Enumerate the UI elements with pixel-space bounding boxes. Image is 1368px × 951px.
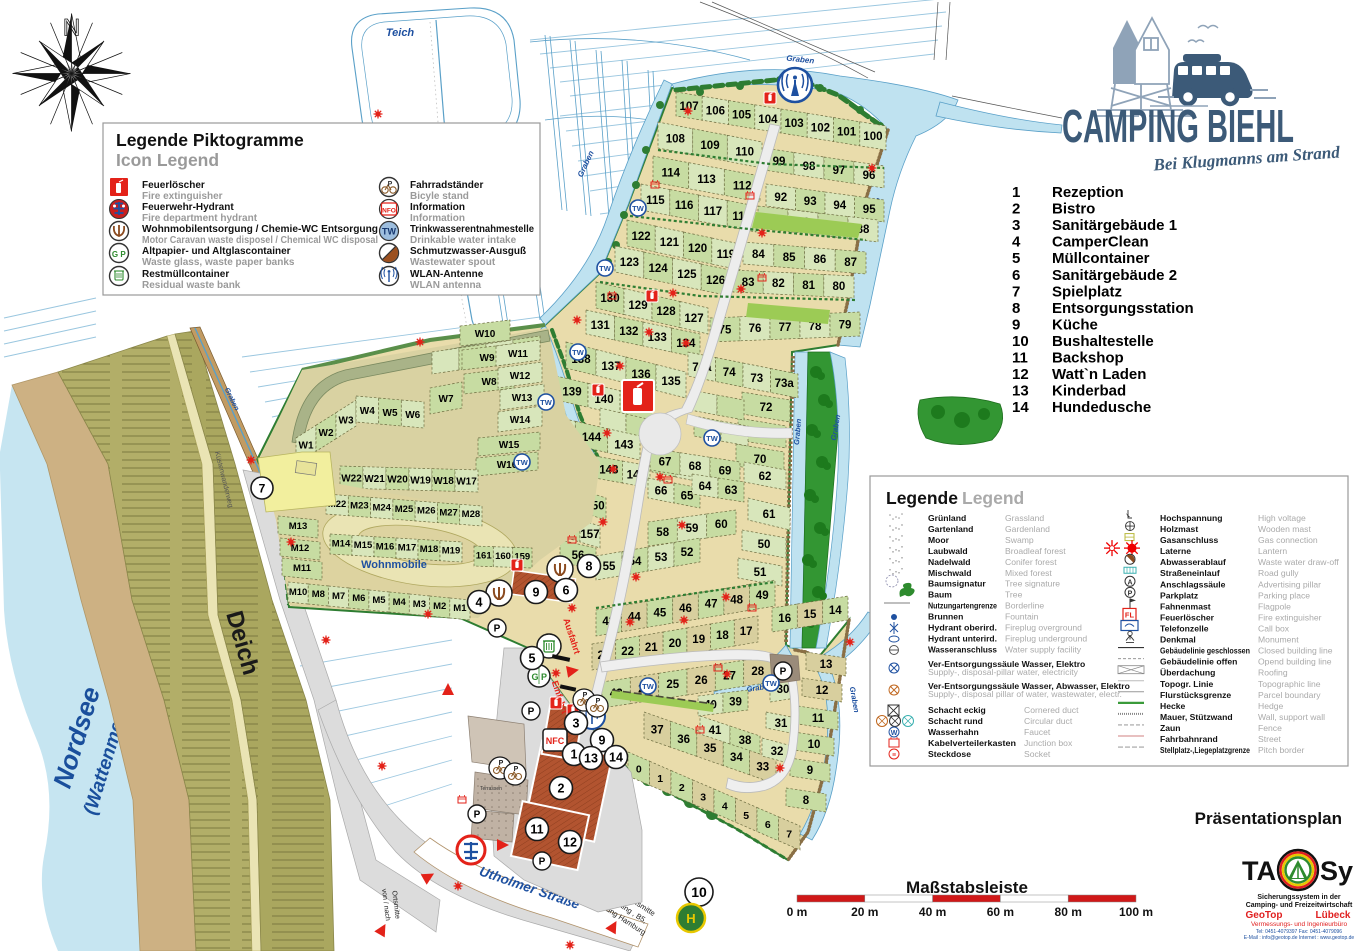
svg-text:Wohnmobile: Wohnmobile bbox=[361, 559, 427, 571]
svg-text:W4: W4 bbox=[360, 406, 375, 417]
svg-text:Drinkable water intake: Drinkable water intake bbox=[410, 235, 517, 246]
svg-text:126: 126 bbox=[706, 275, 725, 287]
svg-text:117: 117 bbox=[704, 206, 723, 218]
svg-text:N: N bbox=[63, 15, 80, 42]
svg-text:Advertising pillar: Advertising pillar bbox=[1258, 579, 1321, 589]
svg-text:15: 15 bbox=[804, 609, 817, 621]
svg-text:P: P bbox=[539, 857, 546, 868]
svg-text:TW: TW bbox=[572, 348, 585, 357]
svg-text:113: 113 bbox=[697, 174, 716, 186]
svg-text:Laterne: Laterne bbox=[1160, 546, 1191, 556]
svg-text:P: P bbox=[583, 692, 588, 699]
svg-text:6: 6 bbox=[765, 819, 771, 831]
svg-text:W3: W3 bbox=[339, 415, 354, 426]
svg-text:Mischwald: Mischwald bbox=[928, 568, 971, 578]
svg-text:28: 28 bbox=[751, 666, 764, 678]
svg-text:110: 110 bbox=[735, 147, 754, 159]
svg-text:Überdachung: Überdachung bbox=[1160, 668, 1215, 678]
svg-text:Gartenland: Gartenland bbox=[928, 524, 973, 534]
svg-text:M25: M25 bbox=[395, 504, 414, 515]
svg-text:TW: TW bbox=[765, 679, 778, 688]
svg-text:Telefonzelle: Telefonzelle bbox=[1160, 624, 1209, 634]
svg-text:4: 4 bbox=[722, 801, 728, 813]
svg-text:Parcel boundary: Parcel boundary bbox=[1258, 690, 1321, 700]
svg-text:Lantern: Lantern bbox=[1258, 546, 1287, 556]
svg-text:36: 36 bbox=[677, 734, 690, 746]
svg-text:49: 49 bbox=[756, 590, 769, 602]
svg-text:W22: W22 bbox=[341, 473, 362, 484]
svg-text:Spielplatz: Spielplatz bbox=[1052, 283, 1122, 300]
svg-text:20 m: 20 m bbox=[851, 905, 878, 919]
svg-text:Flagpole: Flagpole bbox=[1258, 601, 1291, 611]
svg-text:1: 1 bbox=[571, 748, 578, 762]
svg-text:M8: M8 bbox=[312, 589, 325, 600]
svg-text:M5: M5 bbox=[372, 595, 386, 606]
svg-text:Topographic line: Topographic line bbox=[1258, 679, 1321, 689]
svg-text:P: P bbox=[528, 707, 535, 718]
svg-text:3: 3 bbox=[700, 791, 706, 803]
svg-text:87: 87 bbox=[844, 257, 857, 269]
svg-text:14: 14 bbox=[829, 605, 842, 617]
svg-text:M11: M11 bbox=[293, 563, 312, 574]
svg-text:Terrassen: Terrassen bbox=[480, 786, 502, 792]
svg-text:38: 38 bbox=[739, 735, 752, 747]
svg-text:Supply-, disposal pillar of wa: Supply-, disposal pillar of water, waste… bbox=[928, 689, 1122, 699]
svg-text:8: 8 bbox=[1012, 300, 1020, 317]
svg-text:High voltage: High voltage bbox=[1258, 513, 1306, 523]
svg-text:Fountain: Fountain bbox=[1005, 612, 1039, 622]
svg-text:Hochspannung: Hochspannung bbox=[1160, 513, 1223, 523]
svg-text:40 m: 40 m bbox=[919, 905, 946, 919]
svg-text:W: W bbox=[891, 730, 898, 737]
svg-text:124: 124 bbox=[649, 263, 669, 275]
svg-text:M2: M2 bbox=[433, 601, 446, 612]
svg-text:21: 21 bbox=[645, 642, 658, 654]
svg-text:Faucet: Faucet bbox=[1024, 727, 1051, 737]
svg-text:Hundedusche: Hundedusche bbox=[1052, 399, 1151, 416]
svg-text:Wasserhahn: Wasserhahn bbox=[928, 727, 979, 737]
svg-text:12: 12 bbox=[816, 685, 829, 697]
svg-text:Gardenland: Gardenland bbox=[1005, 524, 1050, 534]
svg-text:Nadelwald: Nadelwald bbox=[928, 557, 971, 567]
svg-text:Motor Caravan waste disposel: Motor Caravan waste disposel / Chemical … bbox=[142, 235, 378, 246]
svg-text:135: 135 bbox=[661, 376, 681, 388]
svg-text:58: 58 bbox=[656, 527, 669, 539]
svg-text:Entsorgungsstation: Entsorgungsstation bbox=[1052, 300, 1194, 317]
svg-text:Bushaltestelle: Bushaltestelle bbox=[1052, 333, 1154, 350]
svg-text:Legende Piktogramme: Legende Piktogramme bbox=[116, 130, 304, 150]
svg-text:Wooden mast: Wooden mast bbox=[1258, 524, 1311, 534]
svg-text:73: 73 bbox=[750, 373, 763, 385]
svg-text:2: 2 bbox=[679, 782, 685, 794]
svg-text:31: 31 bbox=[775, 718, 788, 730]
svg-text:Laubwald: Laubwald bbox=[928, 546, 968, 556]
svg-text:Bicyle stand: Bicyle stand bbox=[410, 191, 469, 202]
svg-text:51: 51 bbox=[754, 567, 767, 579]
svg-text:Parking place: Parking place bbox=[1258, 590, 1310, 600]
svg-text:Trinkwasserentnahmestelle: Trinkwasserentnahmestelle bbox=[410, 224, 534, 235]
svg-text:45: 45 bbox=[654, 607, 667, 619]
svg-text:W11: W11 bbox=[508, 349, 528, 360]
svg-text:Fire department hydrant: Fire department hydrant bbox=[142, 213, 258, 224]
svg-text:157: 157 bbox=[580, 529, 599, 541]
svg-text:46: 46 bbox=[679, 603, 692, 615]
svg-text:161: 161 bbox=[476, 550, 493, 561]
svg-text:W1: W1 bbox=[299, 441, 314, 452]
svg-text:4: 4 bbox=[1012, 234, 1021, 251]
svg-text:10: 10 bbox=[808, 739, 821, 751]
svg-text:50: 50 bbox=[758, 539, 771, 551]
svg-text:26: 26 bbox=[695, 675, 708, 687]
svg-text:Parkplatz: Parkplatz bbox=[1160, 590, 1198, 600]
svg-text:17: 17 bbox=[740, 626, 753, 638]
svg-text:100: 100 bbox=[863, 131, 882, 143]
svg-text:Teich: Teich bbox=[386, 27, 415, 39]
svg-text:M18: M18 bbox=[420, 544, 438, 555]
svg-text:Wall, support wall: Wall, support wall bbox=[1258, 712, 1325, 722]
svg-text:Fireplug underground: Fireplug underground bbox=[1005, 634, 1087, 644]
svg-text:Feuerlöscher: Feuerlöscher bbox=[142, 180, 205, 191]
svg-text:Cornered duct: Cornered duct bbox=[1024, 705, 1079, 715]
svg-text:M26: M26 bbox=[417, 506, 435, 517]
svg-text:P: P bbox=[780, 667, 787, 678]
svg-text:80: 80 bbox=[833, 281, 846, 293]
svg-text:Brunnen: Brunnen bbox=[928, 612, 963, 622]
svg-text:W10: W10 bbox=[475, 329, 496, 340]
svg-text:W12: W12 bbox=[510, 371, 531, 382]
svg-text:M27: M27 bbox=[439, 507, 457, 518]
svg-text:8: 8 bbox=[586, 560, 593, 574]
svg-text:3: 3 bbox=[573, 717, 580, 731]
svg-text:TW: TW bbox=[632, 204, 645, 213]
svg-text:63: 63 bbox=[725, 485, 738, 497]
svg-text:Denkmal: Denkmal bbox=[1160, 635, 1196, 645]
svg-text:9: 9 bbox=[807, 765, 813, 777]
svg-text:39: 39 bbox=[729, 697, 742, 709]
svg-text:7: 7 bbox=[259, 481, 266, 495]
svg-text:Baum: Baum bbox=[928, 590, 952, 600]
svg-text:Legend: Legend bbox=[962, 488, 1024, 508]
svg-text:Wastewater spout: Wastewater spout bbox=[410, 257, 496, 268]
svg-text:TW: TW bbox=[382, 227, 396, 237]
svg-text:1: 1 bbox=[1012, 184, 1020, 201]
svg-text:Altpapier- und Altglascontain: Altpapier- und Altglascontainer bbox=[142, 246, 291, 257]
svg-text:33: 33 bbox=[756, 761, 769, 773]
svg-text:Borderline: Borderline bbox=[1005, 601, 1044, 611]
svg-text:Bistro: Bistro bbox=[1052, 201, 1095, 218]
svg-text:Abwasserablauf: Abwasserablauf bbox=[1160, 557, 1226, 567]
svg-text:62: 62 bbox=[759, 471, 772, 483]
svg-text:W17: W17 bbox=[456, 477, 477, 488]
svg-text:101: 101 bbox=[837, 127, 857, 139]
svg-text:2: 2 bbox=[558, 782, 565, 796]
svg-text:112: 112 bbox=[733, 181, 752, 193]
svg-text:Gas connection: Gas connection bbox=[1258, 535, 1318, 545]
svg-text:Backshop: Backshop bbox=[1052, 350, 1124, 367]
svg-text:Hedge: Hedge bbox=[1258, 701, 1284, 711]
svg-text:Opend building line: Opend building line bbox=[1258, 657, 1332, 667]
svg-text:Topogr. Linie: Topogr. Linie bbox=[1160, 679, 1214, 689]
svg-text:13: 13 bbox=[820, 659, 833, 671]
svg-text:P: P bbox=[388, 181, 393, 188]
svg-text:41: 41 bbox=[709, 725, 722, 737]
svg-text:Grassland: Grassland bbox=[1005, 513, 1044, 523]
svg-text:P: P bbox=[499, 760, 504, 767]
svg-text:Stellplatz-,Liegeplatzgrenze: Stellplatz-,Liegeplatzgrenze bbox=[1160, 745, 1250, 755]
svg-text:68: 68 bbox=[689, 461, 702, 473]
svg-text:TW: TW bbox=[516, 458, 529, 467]
svg-text:77: 77 bbox=[779, 322, 792, 334]
svg-text:Küche: Küche bbox=[1052, 316, 1098, 333]
svg-text:Lübeck: Lübeck bbox=[1315, 910, 1350, 921]
svg-text:W13: W13 bbox=[512, 393, 533, 404]
svg-text:7: 7 bbox=[786, 828, 792, 840]
svg-text:Fahnenmast: Fahnenmast bbox=[1160, 601, 1211, 611]
svg-text:Kinderbad: Kinderbad bbox=[1052, 383, 1126, 400]
svg-text:GeoTop: GeoTop bbox=[1245, 910, 1282, 921]
svg-text:Gasanschluss: Gasanschluss bbox=[1160, 535, 1218, 545]
svg-text:52: 52 bbox=[681, 547, 694, 559]
svg-text:128: 128 bbox=[656, 306, 676, 318]
svg-text:13: 13 bbox=[584, 752, 598, 766]
svg-text:93: 93 bbox=[804, 196, 817, 208]
svg-text:Fire extinguisher: Fire extinguisher bbox=[1258, 613, 1322, 623]
svg-text:6: 6 bbox=[563, 584, 570, 598]
svg-text:2: 2 bbox=[1012, 201, 1020, 218]
svg-text:Tree signature: Tree signature bbox=[1005, 579, 1060, 589]
svg-text:122: 122 bbox=[632, 231, 651, 243]
svg-text:22: 22 bbox=[621, 646, 634, 658]
svg-text:Steckdose: Steckdose bbox=[928, 749, 971, 759]
svg-text:Legende: Legende bbox=[886, 488, 958, 508]
svg-text:82: 82 bbox=[772, 278, 785, 290]
svg-text:Swamp: Swamp bbox=[1005, 535, 1034, 545]
svg-text:P: P bbox=[596, 698, 601, 705]
svg-text:Zaun: Zaun bbox=[1160, 723, 1181, 733]
svg-text:12: 12 bbox=[1012, 366, 1029, 383]
svg-text:Kabelverteilerkasten: Kabelverteilerkasten bbox=[928, 738, 1016, 748]
svg-text:W7: W7 bbox=[439, 394, 454, 405]
svg-text:Street: Street bbox=[1258, 734, 1282, 744]
svg-text:Gebäudelinie geschlossen: Gebäudelinie geschlossen bbox=[1160, 646, 1250, 656]
svg-text:109: 109 bbox=[700, 140, 719, 152]
svg-text:Call box: Call box bbox=[1258, 624, 1290, 634]
svg-text:Schacht eckig: Schacht eckig bbox=[928, 705, 986, 715]
svg-text:P: P bbox=[541, 672, 547, 682]
svg-text:Circular duct: Circular duct bbox=[1024, 716, 1073, 726]
svg-text:Sanitärgebäude 1: Sanitärgebäude 1 bbox=[1052, 217, 1177, 234]
svg-text:11: 11 bbox=[530, 823, 543, 837]
svg-text:Nutzungartengrenze: Nutzungartengrenze bbox=[928, 601, 997, 611]
svg-text:69: 69 bbox=[719, 466, 732, 478]
svg-text:W21: W21 bbox=[364, 474, 385, 485]
svg-text:Waste water draw-off: Waste water draw-off bbox=[1258, 557, 1339, 567]
svg-text:W15: W15 bbox=[499, 440, 520, 451]
svg-text:Vermessungs- und Ingenieurbüro: Vermessungs- und Ingenieurbüro bbox=[1251, 921, 1348, 928]
svg-text:Wasseranschluss: Wasseranschluss bbox=[928, 644, 997, 654]
svg-text:104: 104 bbox=[758, 114, 778, 126]
svg-text:10: 10 bbox=[1012, 333, 1029, 350]
svg-text:Supply-, disposal-pillar water: Supply-, disposal-pillar water, electric… bbox=[928, 667, 1079, 677]
svg-text:Anschlagssäule: Anschlagssäule bbox=[1160, 579, 1226, 589]
svg-text:G: G bbox=[531, 672, 538, 682]
svg-text:P: P bbox=[474, 810, 481, 821]
svg-text:CAMPING BIEHL: CAMPING BIEHL bbox=[1062, 100, 1294, 152]
svg-text:M19: M19 bbox=[442, 545, 460, 556]
svg-text:114: 114 bbox=[662, 167, 681, 179]
svg-text:53: 53 bbox=[655, 552, 668, 564]
svg-text:Mixed forest: Mixed forest bbox=[1005, 568, 1052, 578]
svg-text:9: 9 bbox=[1012, 316, 1020, 333]
svg-text:115: 115 bbox=[646, 195, 665, 207]
svg-text:M6: M6 bbox=[352, 593, 365, 604]
svg-text:84: 84 bbox=[752, 249, 765, 261]
svg-text:W20: W20 bbox=[387, 475, 408, 486]
svg-text:19: 19 bbox=[692, 634, 705, 646]
svg-text:Information: Information bbox=[410, 213, 465, 224]
svg-text:129: 129 bbox=[628, 300, 647, 312]
svg-text:A: A bbox=[1127, 579, 1132, 586]
svg-text:120: 120 bbox=[688, 243, 707, 255]
svg-text:M17: M17 bbox=[398, 543, 416, 554]
svg-text:P: P bbox=[1128, 590, 1133, 597]
svg-text:Mauer, Stützwand: Mauer, Stützwand bbox=[1160, 712, 1233, 722]
svg-text:Holzmast: Holzmast bbox=[1160, 524, 1198, 534]
svg-text:M16: M16 bbox=[376, 541, 394, 552]
svg-text:131: 131 bbox=[591, 320, 611, 332]
svg-text:127: 127 bbox=[684, 313, 703, 325]
svg-text:Schacht rund: Schacht rund bbox=[928, 716, 983, 726]
svg-text:Rezeption: Rezeption bbox=[1052, 184, 1124, 201]
svg-text:M24: M24 bbox=[372, 502, 391, 513]
svg-text:14: 14 bbox=[609, 751, 623, 765]
svg-text:55: 55 bbox=[603, 561, 616, 573]
svg-text:143: 143 bbox=[614, 439, 633, 451]
svg-text:Closed building line: Closed building line bbox=[1258, 646, 1333, 656]
svg-text:Tree: Tree bbox=[1005, 590, 1023, 600]
svg-text:WLAN antenna: WLAN antenna bbox=[410, 280, 482, 291]
svg-text:10: 10 bbox=[691, 884, 707, 900]
svg-text:4: 4 bbox=[476, 596, 483, 610]
svg-text:TW: TW bbox=[706, 434, 719, 443]
svg-text:32: 32 bbox=[771, 746, 784, 758]
svg-text:47: 47 bbox=[705, 599, 718, 611]
svg-text:W5: W5 bbox=[383, 408, 398, 419]
svg-text:11: 11 bbox=[1012, 350, 1028, 367]
svg-text:Flurstücksgrenze: Flurstücksgrenze bbox=[1160, 690, 1231, 700]
svg-text:Socket: Socket bbox=[1024, 749, 1051, 759]
svg-text:67: 67 bbox=[659, 456, 672, 468]
svg-text:Fahrbahnrand: Fahrbahnrand bbox=[1160, 734, 1218, 744]
svg-text:TW: TW bbox=[642, 682, 655, 691]
svg-text:81: 81 bbox=[802, 280, 815, 292]
svg-text:121: 121 bbox=[660, 237, 680, 249]
svg-text:9: 9 bbox=[599, 734, 606, 748]
svg-text:74: 74 bbox=[723, 367, 736, 379]
svg-text:8: 8 bbox=[803, 795, 810, 807]
svg-text:Icon Legend: Icon Legend bbox=[116, 150, 219, 170]
svg-text:Hydrant unterird.: Hydrant unterird. bbox=[928, 634, 997, 644]
svg-text:CamperClean: CamperClean bbox=[1052, 234, 1149, 251]
svg-text:Road gully: Road gully bbox=[1258, 568, 1299, 578]
svg-text:86: 86 bbox=[814, 254, 827, 266]
svg-text:59: 59 bbox=[686, 523, 699, 535]
svg-text:Wohnmobilentsorgung / Chemie-: Wohnmobilentsorgung / Chemie-WC Entsorgu… bbox=[142, 224, 378, 235]
svg-text:Müllcontainer: Müllcontainer bbox=[1052, 250, 1150, 267]
svg-text:M23: M23 bbox=[350, 501, 368, 512]
svg-text:25: 25 bbox=[666, 679, 679, 691]
svg-text:Feuerlöscher: Feuerlöscher bbox=[1160, 613, 1215, 623]
svg-text:95: 95 bbox=[863, 204, 876, 216]
svg-text:76: 76 bbox=[749, 323, 762, 335]
svg-text:P: P bbox=[494, 624, 501, 635]
svg-text:5: 5 bbox=[529, 652, 536, 666]
svg-text:Hydrant oberird.: Hydrant oberird. bbox=[928, 623, 997, 633]
svg-text:Sy: Sy bbox=[1320, 856, 1353, 886]
svg-text:9: 9 bbox=[533, 586, 540, 600]
svg-text:Fence: Fence bbox=[1258, 723, 1282, 733]
svg-text:6: 6 bbox=[1012, 267, 1020, 284]
svg-text:99: 99 bbox=[773, 156, 786, 168]
svg-text:W2: W2 bbox=[319, 428, 334, 439]
svg-text:123: 123 bbox=[620, 257, 639, 269]
svg-text:Straßeneinlauf: Straßeneinlauf bbox=[1160, 568, 1220, 578]
svg-text:72: 72 bbox=[760, 402, 773, 414]
svg-text:Watt`n Laden: Watt`n Laden bbox=[1052, 366, 1146, 383]
svg-text:E-Mail : info@geotop.de Inte: E-Mail : info@geotop.de Internet : www.g… bbox=[1244, 935, 1355, 941]
svg-text:NFC: NFC bbox=[546, 736, 565, 746]
svg-text:37: 37 bbox=[651, 725, 664, 737]
svg-text:Water supply facility: Water supply facility bbox=[1005, 644, 1082, 654]
svg-text:48: 48 bbox=[730, 594, 743, 606]
svg-text:Baumsignatur: Baumsignatur bbox=[928, 579, 986, 589]
svg-text:105: 105 bbox=[732, 110, 752, 122]
svg-text:M28: M28 bbox=[462, 509, 480, 520]
svg-text:W19: W19 bbox=[410, 475, 431, 486]
svg-text:Sicherungssystem in der: Sicherungssystem in der bbox=[1257, 894, 1341, 901]
svg-text:NFO: NFO bbox=[382, 208, 396, 215]
svg-text:Fireplug overground: Fireplug overground bbox=[1005, 623, 1082, 633]
svg-text:Junction box: Junction box bbox=[1024, 738, 1073, 748]
svg-text:Residual waste bank: Residual waste bank bbox=[142, 280, 241, 291]
svg-text:M14: M14 bbox=[332, 539, 351, 550]
svg-text:92: 92 bbox=[774, 192, 787, 204]
svg-text:Schmutzwasser-Ausguß: Schmutzwasser-Ausguß bbox=[410, 246, 526, 257]
svg-text:Präsentationsplan: Präsentationsplan bbox=[1195, 809, 1342, 828]
svg-text:96: 96 bbox=[863, 170, 876, 182]
svg-text:102: 102 bbox=[811, 122, 830, 134]
svg-text:M10: M10 bbox=[289, 587, 307, 598]
svg-text:0: 0 bbox=[636, 764, 642, 776]
svg-text:TA: TA bbox=[1242, 856, 1276, 886]
svg-text:79: 79 bbox=[839, 320, 852, 332]
svg-text:Waste glass, waste paper banks: Waste glass, waste paper banks bbox=[142, 257, 295, 268]
svg-text:5: 5 bbox=[1012, 250, 1020, 267]
svg-text:G: G bbox=[112, 250, 118, 259]
svg-text:Grünland: Grünland bbox=[928, 513, 966, 523]
svg-text:≡: ≡ bbox=[892, 752, 896, 759]
svg-text:M3: M3 bbox=[413, 599, 426, 610]
svg-text:M7: M7 bbox=[332, 591, 345, 602]
svg-text:5: 5 bbox=[743, 810, 749, 822]
svg-text:TW: TW bbox=[540, 398, 553, 407]
svg-text:34: 34 bbox=[730, 752, 743, 764]
svg-text:Moor: Moor bbox=[928, 535, 950, 545]
svg-text:H: H bbox=[686, 911, 695, 926]
svg-text:Restmüllcontainer: Restmüllcontainer bbox=[142, 269, 229, 280]
svg-text:FL: FL bbox=[1125, 611, 1135, 620]
svg-text:80 m: 80 m bbox=[1055, 905, 1082, 919]
